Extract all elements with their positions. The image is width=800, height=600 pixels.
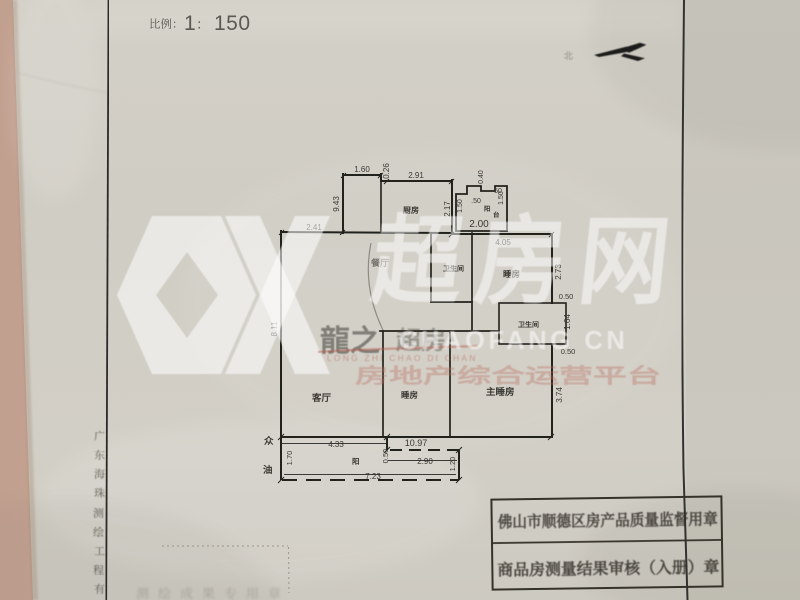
svg-text:0.50: 0.50 xyxy=(381,449,390,464)
svg-text:1.60: 1.60 xyxy=(354,165,370,174)
svg-text:佛山市顺德区房产品质量监督用章: 佛山市顺德区房产品质量监督用章 xyxy=(497,506,718,532)
svg-text:7.23: 7.23 xyxy=(365,472,381,481)
svg-text:CHAOFANG CN: CHAOFANG CN xyxy=(399,327,628,355)
svg-text:商品房测量结果审核（入册）章: 商品房测量结果审核（入册）章 xyxy=(497,554,719,580)
svg-text:10.97: 10.97 xyxy=(405,438,428,448)
svg-text:2.90: 2.90 xyxy=(417,457,433,466)
svg-text:客厅: 客厅 xyxy=(311,390,332,404)
svg-text:1.70: 1.70 xyxy=(285,451,294,466)
svg-text:阳: 阳 xyxy=(352,456,360,467)
svg-text:北: 北 xyxy=(564,49,573,62)
svg-text:众: 众 xyxy=(264,433,274,447)
svg-text:0.40: 0.40 xyxy=(478,170,485,184)
svg-text:测: 测 xyxy=(93,505,104,521)
svg-text:9.43: 9.43 xyxy=(332,196,341,212)
svg-text:4.33: 4.33 xyxy=(328,440,344,449)
svg-text:油: 油 xyxy=(263,462,273,476)
svg-text:0.26: 0.26 xyxy=(382,163,391,179)
svg-text:1: 1 xyxy=(184,12,196,35)
svg-text:绘: 绘 xyxy=(93,524,104,540)
svg-text:150: 150 xyxy=(214,12,251,35)
svg-text:房地产综合运营平台: 房地产综合运营平台 xyxy=(355,360,661,390)
svg-text:超房网: 超房网 xyxy=(366,183,691,324)
svg-text:2.91: 2.91 xyxy=(408,171,424,180)
svg-text:东: 东 xyxy=(94,447,105,463)
svg-text:有: 有 xyxy=(94,581,105,597)
svg-text:工: 工 xyxy=(94,543,105,559)
svg-text:珠: 珠 xyxy=(94,485,105,501)
svg-text:比例：: 比例： xyxy=(149,16,184,32)
svg-text:广: 广 xyxy=(94,428,105,444)
svg-text:睡房: 睡房 xyxy=(401,389,418,401)
svg-text:测绘成果专用章: 测绘成果专用章 xyxy=(136,583,290,600)
svg-text:程: 程 xyxy=(93,562,104,578)
svg-text:：: ： xyxy=(196,14,210,34)
svg-text:海: 海 xyxy=(94,466,105,482)
svg-text:1.20: 1.20 xyxy=(448,457,457,472)
